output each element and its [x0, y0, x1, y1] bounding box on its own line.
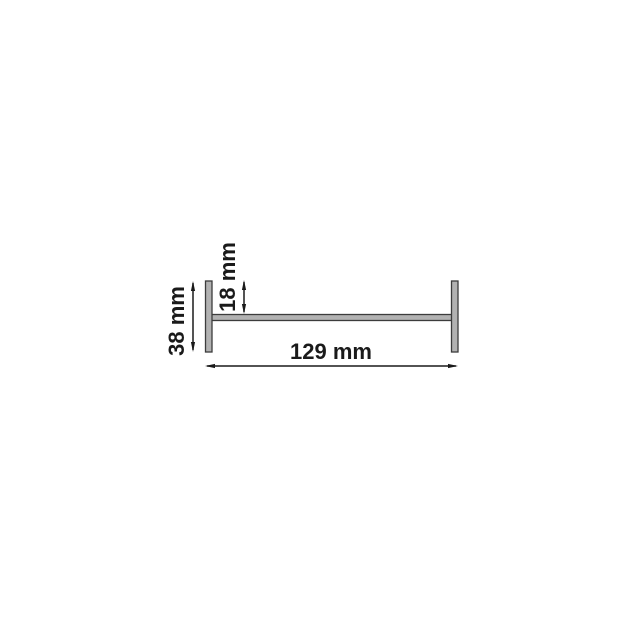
dimension-38mm: 38 mm [164, 281, 195, 356]
h-profile-dimension-drawing: 18 mm 38 mm 129 mm [0, 0, 640, 640]
profile-web [210, 315, 453, 321]
dimension-label-38mm: 38 mm [164, 286, 189, 356]
arrowhead-right-icon [448, 364, 458, 368]
arrowhead-up-icon [191, 281, 195, 291]
dimension-label-129mm: 129 mm [290, 339, 372, 364]
arrowhead-left-icon [205, 364, 215, 368]
dimension-label-18mm: 18 mm [215, 242, 240, 312]
arrowhead-down-icon [191, 342, 195, 352]
profile-left-flange [206, 281, 213, 352]
arrowhead-down-icon [242, 304, 246, 314]
arrowhead-up-icon [242, 280, 246, 290]
technical-drawing-canvas: 18 mm 38 mm 129 mm [0, 0, 640, 640]
profile-right-flange [452, 281, 459, 352]
dimension-18mm: 18 mm [215, 242, 246, 314]
dimension-129mm: 129 mm [205, 339, 458, 368]
